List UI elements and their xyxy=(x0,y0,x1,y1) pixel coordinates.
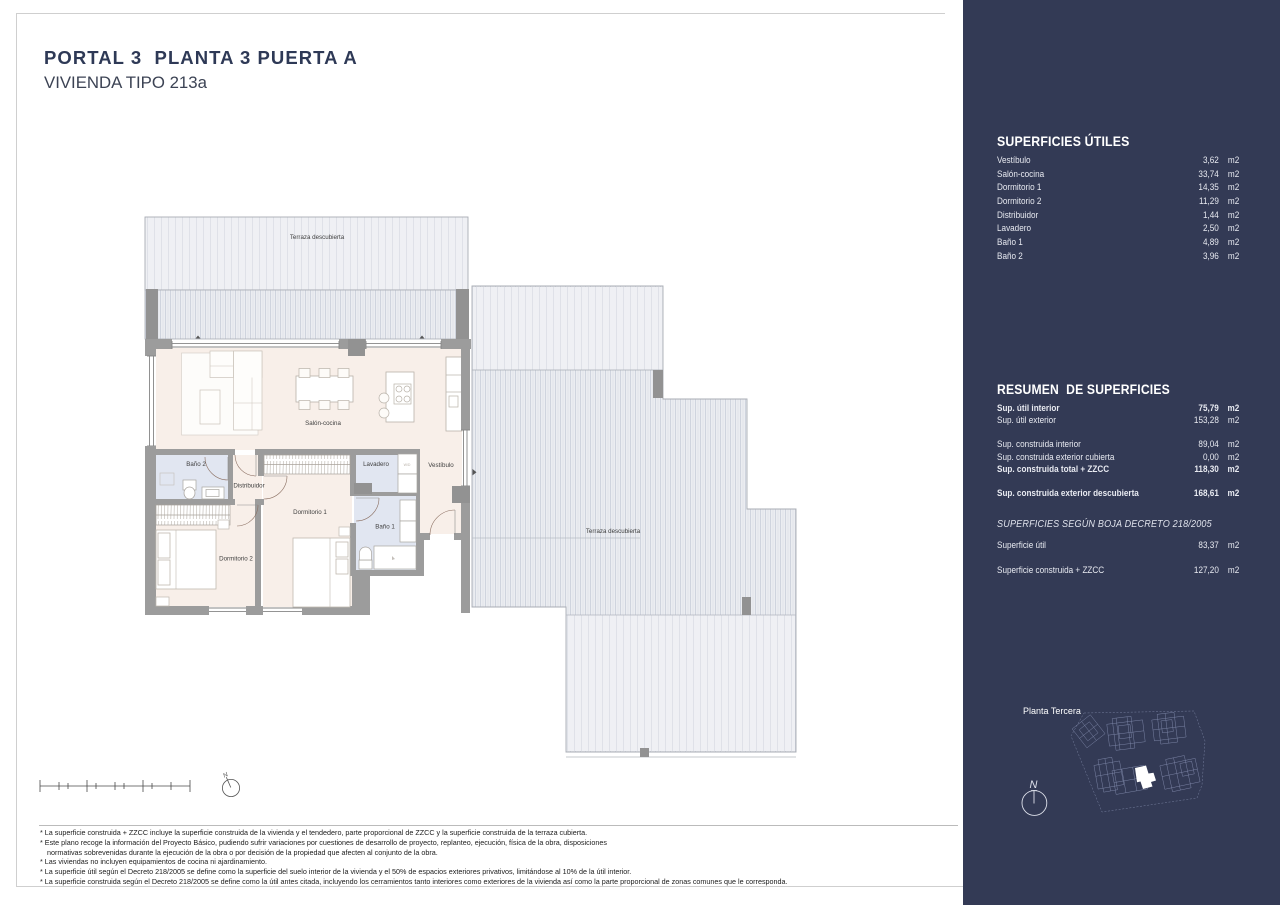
svg-text:Terraza descubierta: Terraza descubierta xyxy=(290,234,345,241)
svg-text:Dormitorio 1: Dormitorio 1 xyxy=(293,509,327,516)
svg-text:Baño 1: Baño 1 xyxy=(375,524,395,531)
svg-text:Distribuidor: Distribuidor xyxy=(233,483,264,490)
svg-text:Salón-cocina: Salón-cocina xyxy=(305,420,341,427)
svg-text:Lavadero: Lavadero xyxy=(363,461,389,468)
svg-text:W/D: W/D xyxy=(404,463,411,467)
svg-text:Vestíbulo: Vestíbulo xyxy=(428,462,454,469)
svg-text:Dormitorio 2: Dormitorio 2 xyxy=(219,556,253,563)
svg-text:Terraza descubierta: Terraza descubierta xyxy=(586,528,641,535)
svg-text:N: N xyxy=(1030,779,1038,791)
svg-text:N: N xyxy=(222,771,230,780)
svg-text:Baño 2: Baño 2 xyxy=(186,461,206,468)
